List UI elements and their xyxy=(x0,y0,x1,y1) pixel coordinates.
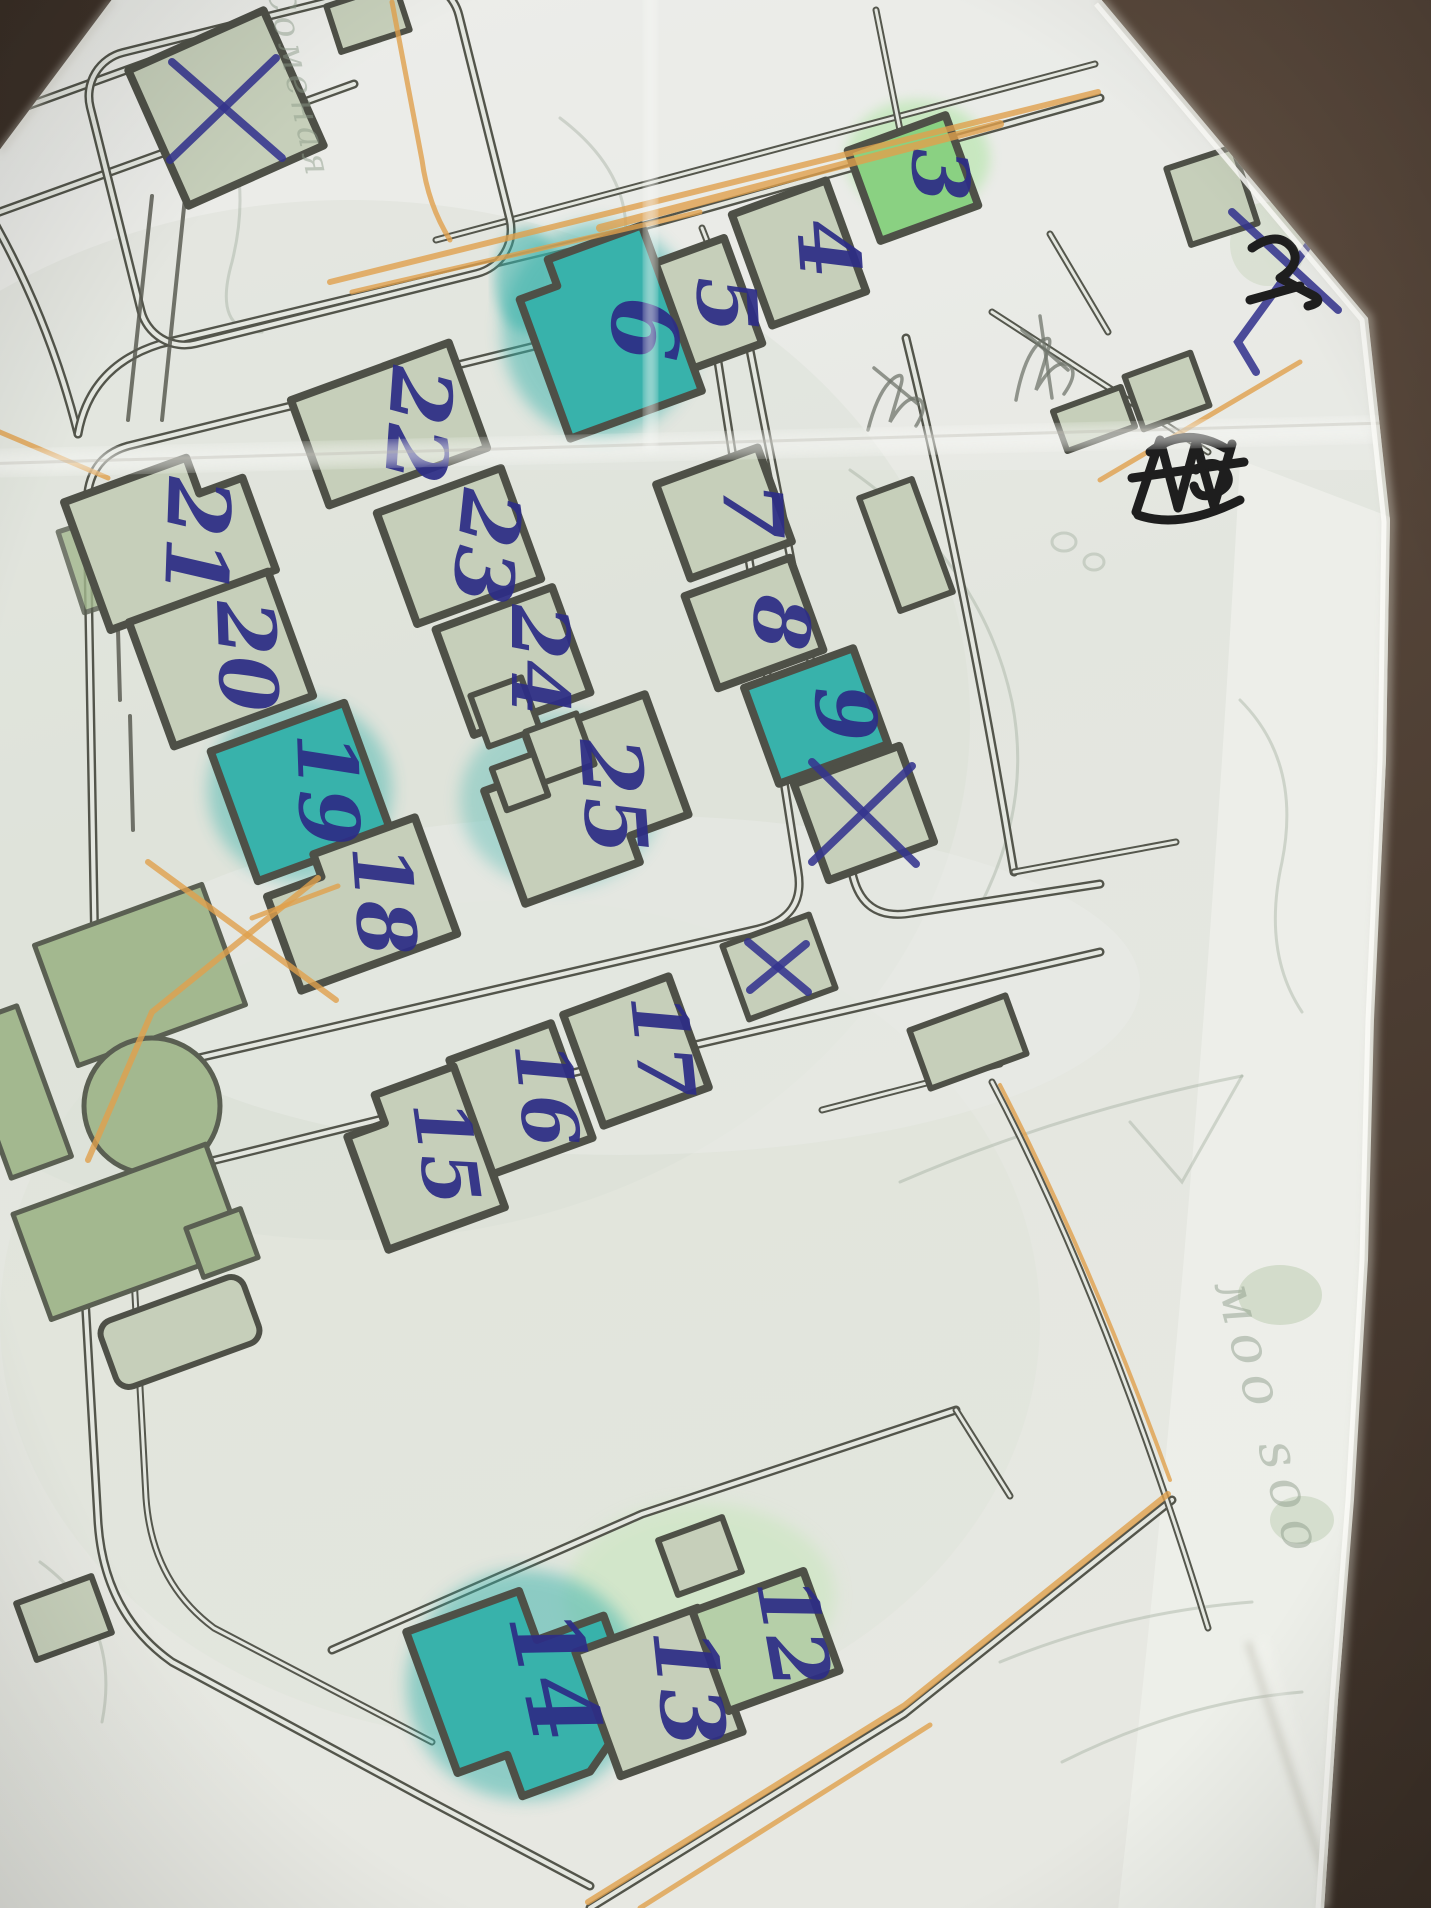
photo-of-paper-map: 3 4 5 6 7 8 9 12 13 14 15 16 17 18 19 20… xyxy=(0,0,1431,1908)
photo-vignette xyxy=(0,0,1431,1908)
map-photo-canvas: 3 4 5 6 7 8 9 12 13 14 15 16 17 18 19 20… xyxy=(0,0,1431,1908)
